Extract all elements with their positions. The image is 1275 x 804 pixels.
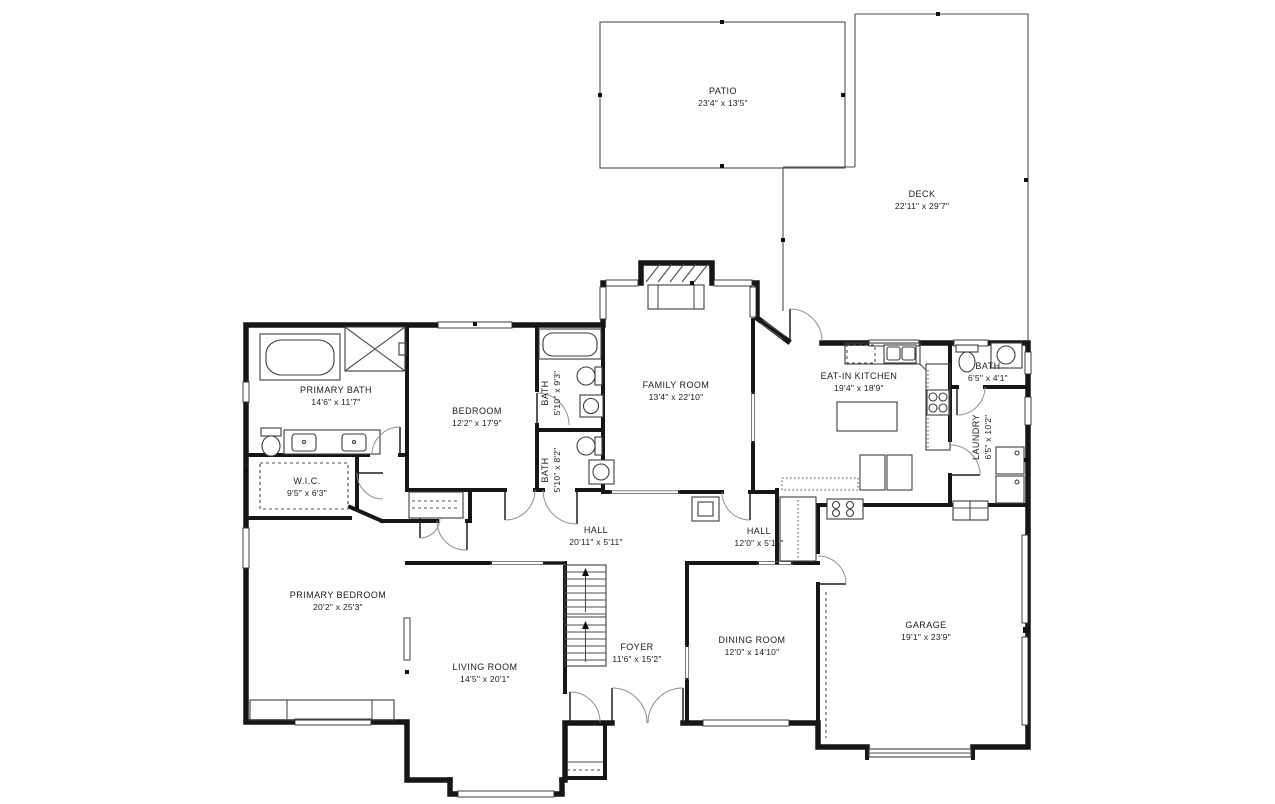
kitchen-island: [837, 402, 897, 431]
bathtub-icon: [539, 329, 601, 359]
toilet-icon: [577, 437, 602, 455]
toilet-icon: [261, 428, 281, 456]
kitchen-sink-icon: [884, 345, 916, 363]
built-in-cabinet: [692, 497, 719, 521]
sink-icon: [991, 343, 1022, 368]
floor-plan: PATIO 23'4" x 13'5" DECK 22'11" x 29'7" …: [0, 0, 1275, 804]
interior-walls: [246, 320, 1028, 723]
toilet-icon: [577, 367, 602, 385]
fireplace-icon: [646, 264, 708, 309]
deck-outline: [783, 14, 1028, 341]
shower-icon: [345, 327, 406, 371]
floor-plan-canvas: [0, 0, 1275, 804]
double-vanity-icon: [284, 430, 380, 454]
sink-icon: [589, 460, 614, 484]
bathtub-icon: [260, 334, 340, 380]
sink-icon: [580, 395, 603, 417]
doors: [357, 309, 985, 723]
refrigerator-icon: [860, 455, 912, 490]
stove-icon: [927, 390, 949, 415]
wic-shelving: [260, 463, 348, 509]
patio-outline: [600, 22, 845, 168]
pantry-closet: [780, 497, 816, 561]
garage-door: [869, 749, 971, 757]
hall-closet: [409, 492, 463, 518]
window-bench: [250, 700, 394, 720]
stairs-icon: [565, 565, 606, 666]
utility-burner-icon: [827, 499, 863, 519]
utility-sink-icon: [953, 501, 988, 520]
kitchen-lower-counter: [782, 478, 858, 490]
washer-dryer-icon: [996, 447, 1024, 503]
toilet-icon: [956, 345, 978, 372]
front-stoop: [567, 762, 603, 770]
